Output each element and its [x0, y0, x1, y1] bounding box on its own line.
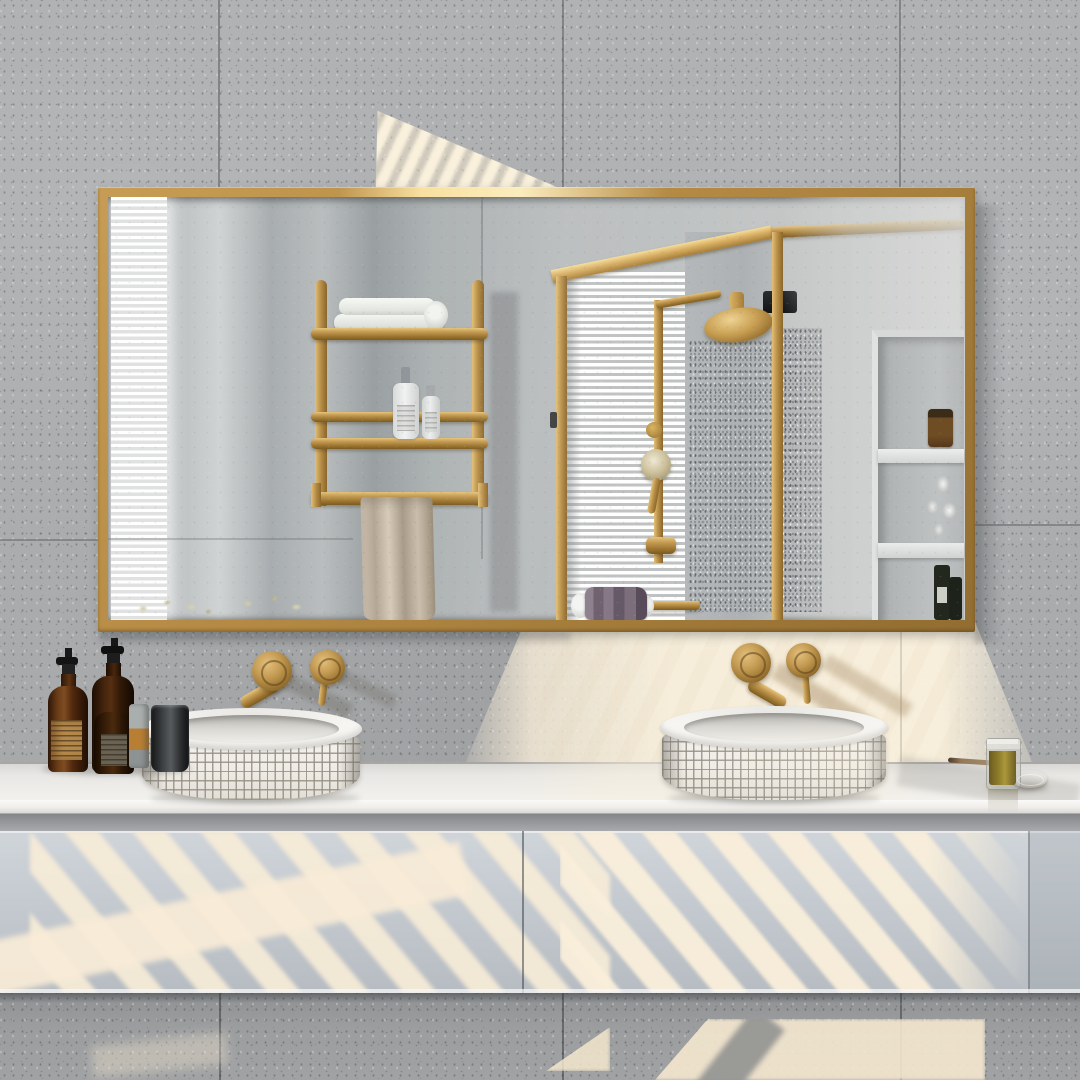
left-sink-bowl [163, 715, 339, 743]
front-bottle-label [101, 734, 127, 766]
mirror-reflection [108, 197, 965, 620]
amber-pump-bottle-1 [48, 648, 88, 772]
bottle-label-1 [51, 720, 82, 760]
left-faucet-escutcheon [252, 651, 292, 691]
concrete-wall-lower [0, 993, 1080, 1080]
lower-sun-patch-left [91, 1032, 229, 1078]
candle-reflection [988, 789, 1018, 813]
candle-lid [1012, 770, 1047, 788]
counter-front-edge [0, 800, 1080, 814]
right-faucet-escutcheon [731, 643, 771, 683]
cabinet-sun-stripes-right [560, 831, 1030, 993]
cosmetic-tube [129, 704, 149, 768]
counter-under-shadow [0, 814, 1080, 831]
mirror-shadow-right [975, 205, 1003, 643]
right-faucet-valve-escutcheon [786, 643, 821, 678]
wall-grout-vertical-1 [218, 0, 220, 190]
dark-tumbler [151, 705, 189, 772]
amber-bottle-front [94, 712, 134, 774]
wall-grout-vertical-2 [562, 0, 564, 190]
mirror-shadow-bottom [100, 632, 570, 646]
cabinet-right-panel-shade [1030, 831, 1080, 993]
left-faucet-valve-escutcheon [310, 650, 345, 685]
mirror-sheen [108, 197, 965, 620]
gold-framed-mirror [98, 187, 975, 632]
lower-sun-patch-gap [687, 1007, 785, 1080]
bathroom-photo [0, 0, 1080, 1080]
wall-grout-horizontal-left [0, 539, 98, 541]
right-sink-warm-light [660, 706, 888, 800]
wall-grout-vertical-3 [899, 0, 901, 190]
lower-sun-patch-small [546, 1027, 610, 1071]
lid-ring [1017, 774, 1044, 786]
lower-sun-patch-large [655, 1019, 985, 1080]
right-vessel-sink [660, 706, 888, 800]
cabinet-drop-shadow [0, 993, 1080, 1003]
jar-rim [987, 739, 1018, 744]
vanity-cabinet [0, 831, 1080, 993]
cabinet-seam-center [522, 831, 524, 993]
